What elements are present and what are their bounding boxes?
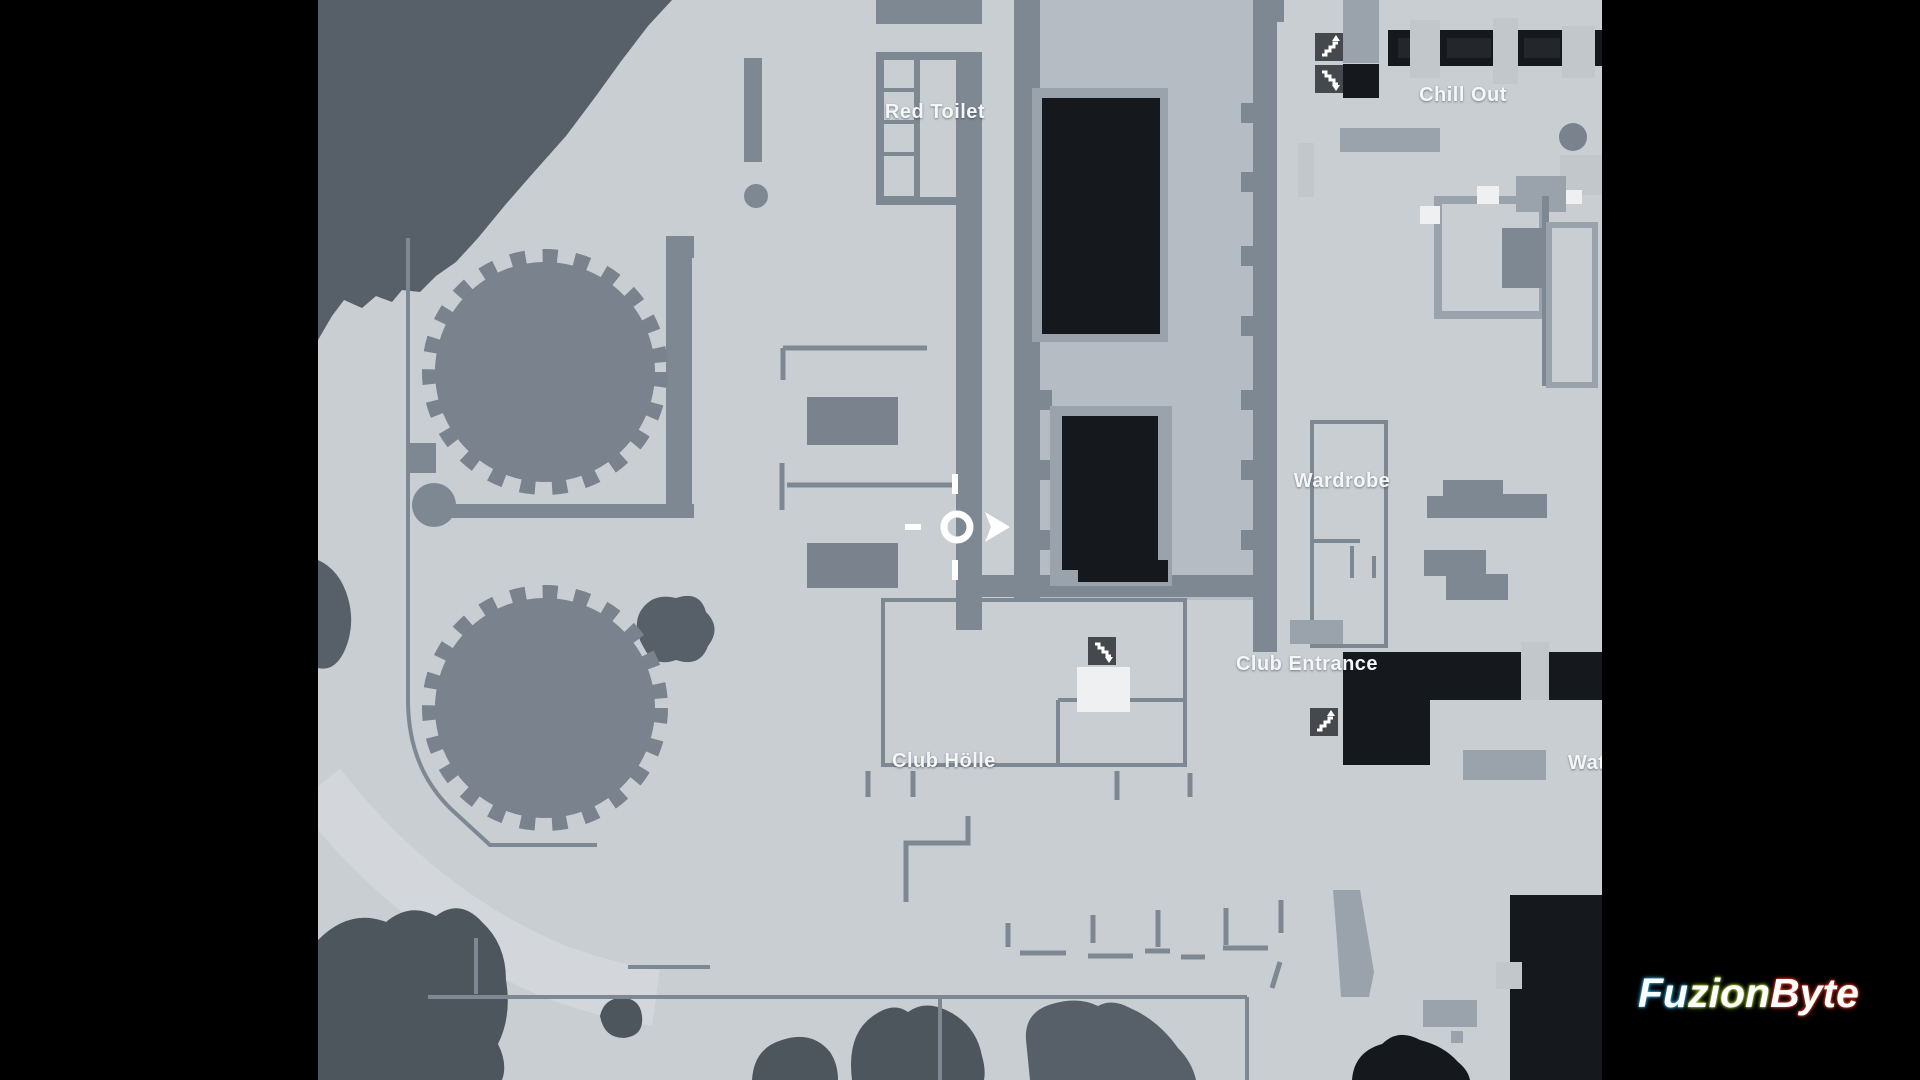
tank2-rock xyxy=(637,596,715,662)
stairs-down-icon-chill-out xyxy=(1315,65,1343,93)
wall-bar xyxy=(744,58,762,162)
bar-counter-inset xyxy=(1447,38,1491,58)
door-marker xyxy=(1420,206,1440,224)
dance-floor-south xyxy=(1062,416,1168,582)
bar-pillar xyxy=(1493,18,1518,84)
toilet-stall xyxy=(884,124,914,152)
bar-pillar xyxy=(1562,26,1595,78)
game-screen: Red Toilet Chill Out Wardrobe Club Entra… xyxy=(0,0,1920,1080)
entrance-dark-band xyxy=(1343,652,1602,700)
lounge-bed xyxy=(807,397,898,445)
entrance-bench xyxy=(1463,750,1546,780)
label-water-clipped: Wat xyxy=(1568,752,1605,774)
stair-landing xyxy=(1077,667,1130,712)
wall-nub xyxy=(1270,0,1284,22)
door-marker xyxy=(1477,186,1499,204)
entrance-pillar xyxy=(1521,642,1549,700)
planter xyxy=(1423,1000,1477,1027)
stairs-down-icon-club-holle xyxy=(1088,637,1116,665)
label-red-toilet: Red Toilet xyxy=(885,101,985,123)
club-map[interactable]: Red Toilet Chill Out Wardrobe Club Entra… xyxy=(0,0,1920,1080)
enclosure-wall-south xyxy=(450,504,694,518)
lounge-bed xyxy=(807,543,898,588)
southeast-dark-corner xyxy=(1510,895,1602,1080)
bush-southwest xyxy=(318,908,508,1080)
enclosure-corner xyxy=(666,236,694,258)
watermark-segment: zion xyxy=(1688,970,1770,1016)
label-wardrobe: Wardrobe xyxy=(1294,470,1391,492)
toilet-stall xyxy=(884,156,914,196)
hall-wall-east xyxy=(1253,0,1277,652)
dance-floor-north xyxy=(1042,98,1160,334)
tank-body xyxy=(435,262,655,482)
bar-dark-block xyxy=(1343,64,1379,98)
enclosure-round xyxy=(412,483,456,527)
door-marker xyxy=(1566,190,1582,204)
player-tick-south xyxy=(952,560,958,580)
toilet-corridor xyxy=(920,60,956,197)
door-notch xyxy=(1496,962,1522,989)
light-block xyxy=(1560,155,1602,195)
door-column xyxy=(1298,143,1314,197)
round-table xyxy=(1559,123,1587,151)
hall-wall-west-outer xyxy=(956,80,982,630)
wing-wall xyxy=(1340,128,1440,152)
toilet-stall xyxy=(884,60,914,88)
watermark-segment: Fu xyxy=(1638,970,1688,1016)
player-tick-north xyxy=(952,474,958,494)
entrance-wall xyxy=(1290,620,1343,644)
label-chill-out: Chill Out xyxy=(1419,84,1507,106)
enclosure-wall-east xyxy=(666,236,692,512)
planter-small xyxy=(1451,1031,1463,1043)
bar-pillar xyxy=(1410,20,1440,78)
column-dot xyxy=(744,184,768,208)
player-tick-west xyxy=(905,524,921,530)
room-block xyxy=(1516,176,1566,212)
label-club-holle: Club Hölle xyxy=(892,750,996,772)
toilet-top-wall xyxy=(876,0,982,24)
enclosure-block xyxy=(408,443,436,473)
fuzionbyte-watermark: FuzionByte xyxy=(1638,970,1900,1030)
entrance-dark-block xyxy=(1343,700,1430,765)
tank-body xyxy=(435,598,655,818)
tall-room-floor xyxy=(1552,228,1592,382)
stairs-up-icon-chill-out xyxy=(1315,33,1343,61)
room-inner-block xyxy=(1502,228,1542,288)
letterbox-left xyxy=(0,0,318,1080)
label-club-entrance: Club Entrance xyxy=(1236,653,1378,675)
stairs-up-icon-club-entrance xyxy=(1310,708,1338,736)
letterbox-right xyxy=(1602,0,1920,1080)
bar-block xyxy=(1343,0,1379,63)
watermark-segment: Byte xyxy=(1770,970,1859,1016)
bar-counter-inset xyxy=(1524,38,1560,58)
